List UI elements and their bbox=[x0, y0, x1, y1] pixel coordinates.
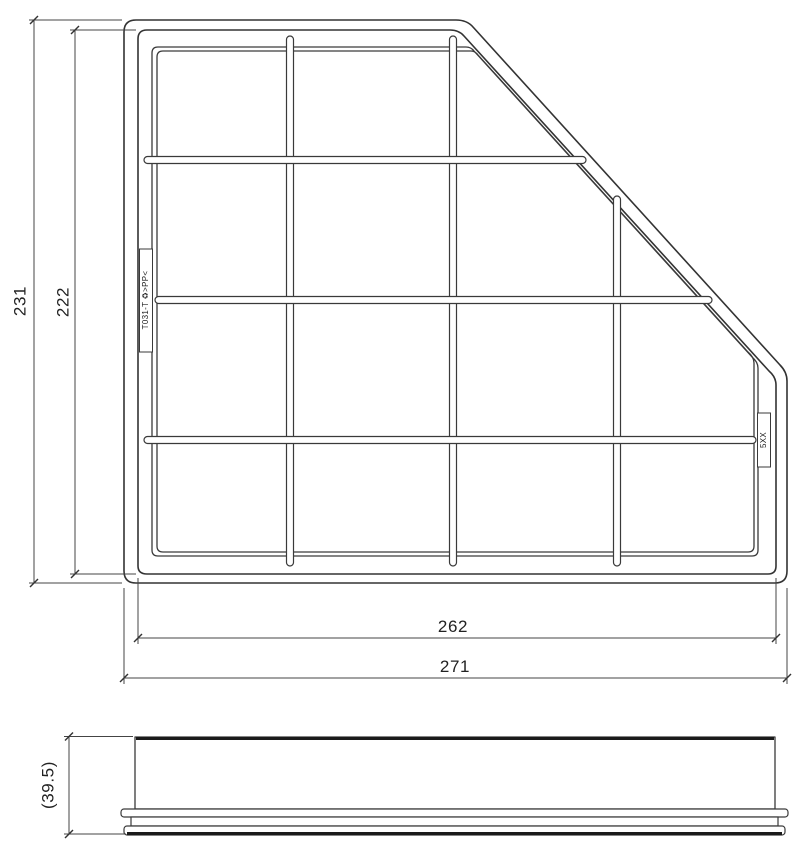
dim-text-222: 222 bbox=[53, 287, 72, 317]
side-view-gasket-step bbox=[131, 817, 778, 826]
air-filter-drawing: T031-T ♻>PP< 5XX 231 222 262 bbox=[0, 0, 800, 856]
dim-text-262: 262 bbox=[438, 617, 468, 636]
molded-label-right-text: 5XX bbox=[759, 432, 768, 448]
dim-text-271: 271 bbox=[440, 657, 470, 676]
top-view: T031-T ♻>PP< 5XX bbox=[124, 20, 787, 583]
side-view bbox=[121, 737, 788, 835]
technical-drawing-page: T031-T ♻>PP< 5XX 231 222 262 bbox=[0, 0, 800, 856]
grid-rib-horizontal-1 bbox=[144, 157, 586, 164]
dimension-outer-width: 271 bbox=[120, 588, 791, 684]
dim-text-39-5: (39.5) bbox=[38, 761, 57, 809]
molded-label-left-text: T031-T ♻>PP< bbox=[141, 271, 150, 330]
grid-rib-vertical-3 bbox=[614, 196, 621, 566]
dimension-side-height: (39.5) bbox=[38, 733, 133, 839]
molded-label-right: 5XX bbox=[758, 413, 771, 467]
dimension-body-width: 262 bbox=[134, 578, 780, 644]
grid-rib-horizontal-2 bbox=[155, 297, 712, 304]
dim-text-231: 231 bbox=[10, 286, 29, 316]
side-view-flange bbox=[121, 809, 788, 817]
side-view-body bbox=[135, 737, 775, 809]
grid-rib-horizontal-3 bbox=[144, 437, 756, 444]
molded-label-left: T031-T ♻>PP< bbox=[140, 249, 153, 352]
